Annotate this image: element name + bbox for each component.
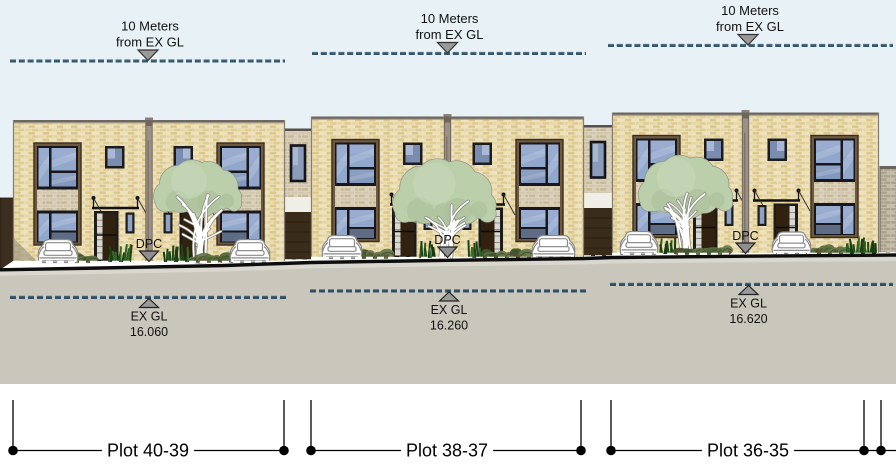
svg-text:Plot 38-37: Plot 38-37 xyxy=(406,441,488,461)
svg-text:16.620: 16.620 xyxy=(729,312,767,326)
svg-text:from EX GL: from EX GL xyxy=(416,27,484,42)
svg-text:DPC: DPC xyxy=(732,229,758,243)
svg-text:Plot 36-35: Plot 36-35 xyxy=(707,441,789,461)
svg-text:DPC: DPC xyxy=(136,237,162,251)
svg-text:DPC: DPC xyxy=(434,233,460,247)
svg-text:10 Meters: 10 Meters xyxy=(121,19,179,34)
svg-text:EX GL: EX GL xyxy=(730,297,767,311)
svg-text:from EX GL: from EX GL xyxy=(716,19,784,34)
svg-text:EX GL: EX GL xyxy=(131,310,168,324)
svg-text:Plot 40-39: Plot 40-39 xyxy=(107,441,189,461)
svg-text:10 Meters: 10 Meters xyxy=(721,3,779,18)
svg-text:16.060: 16.060 xyxy=(130,325,168,339)
svg-text:10 Meters: 10 Meters xyxy=(421,11,479,26)
svg-text:EX GL: EX GL xyxy=(431,303,468,317)
svg-text:from EX GL: from EX GL xyxy=(116,34,184,49)
svg-text:16.260: 16.260 xyxy=(430,319,468,333)
